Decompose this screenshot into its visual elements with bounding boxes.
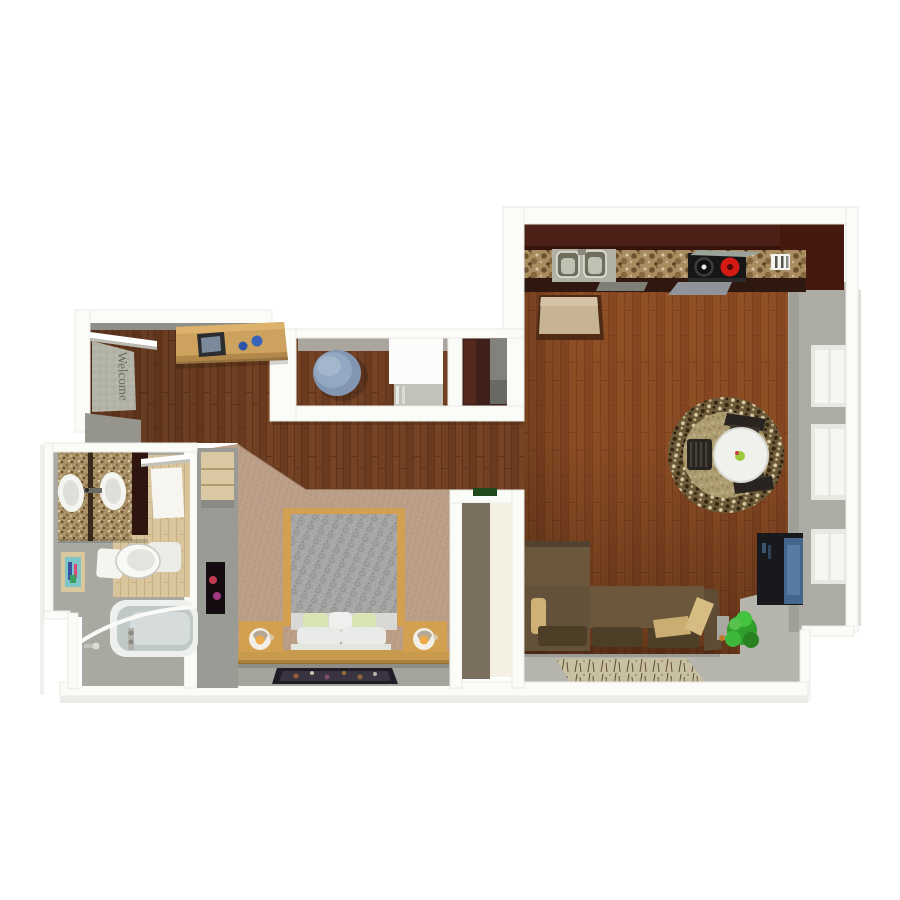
svg-text:Welcome: Welcome bbox=[115, 352, 132, 401]
